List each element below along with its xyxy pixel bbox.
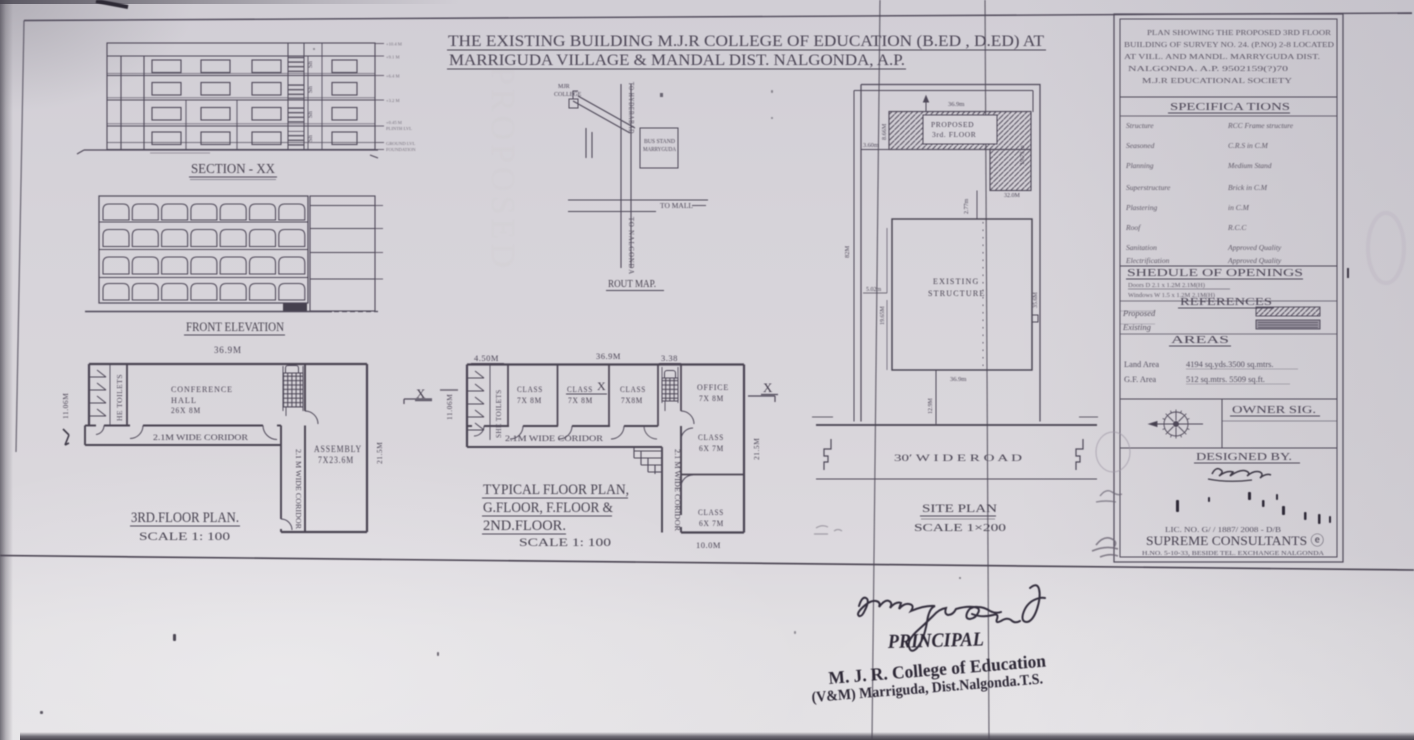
svg-text:SUPREME CONSULTANTS ⓔ: SUPREME CONSULTANTS ⓔ xyxy=(1146,533,1324,548)
svg-text:AREAS: AREAS xyxy=(1171,335,1229,346)
svg-text:Seasoned: Seasoned xyxy=(1126,141,1155,150)
svg-text:3.60m: 3.60m xyxy=(863,142,879,149)
svg-text:36.9m: 36.9m xyxy=(950,376,966,383)
svg-text:35.6M: 35.6M xyxy=(1033,292,1039,309)
svg-text:19.65M: 19.65M xyxy=(880,306,886,326)
svg-text:Sh: Sh xyxy=(307,60,314,68)
svg-text:SCALE 1×200: SCALE 1×200 xyxy=(914,523,1006,534)
svg-text:SPECIFICA TIONS: SPECIFICA TIONS xyxy=(1170,102,1290,113)
svg-text:10.0M: 10.0M xyxy=(696,540,721,550)
svg-text:PLAN SHOWING THE PROPOSED 3RD: PLAN SHOWING THE PROPOSED 3RD FLOOR xyxy=(1147,28,1332,37)
svg-text:30′ W I D E R O A D: 30′ W I D E R O A D xyxy=(894,453,1023,463)
svg-text:ASSEMBLY: ASSEMBLY xyxy=(314,444,362,454)
svg-text:FOUNDATION: FOUNDATION xyxy=(386,147,416,152)
svg-text:OWNER SIG.: OWNER SIG. xyxy=(1232,405,1316,416)
svg-text:OFFICE: OFFICE xyxy=(697,383,729,392)
svg-text:6X 7M: 6X 7M xyxy=(699,444,724,453)
svg-text:7X23.6M: 7X23.6M xyxy=(318,455,354,465)
svg-text:Roof: Roof xyxy=(1125,223,1141,232)
svg-text:2.77m: 2.77m xyxy=(964,199,970,215)
svg-text:Medium Stand: Medium Stand xyxy=(1227,161,1272,170)
svg-text:5.02m: 5.02m xyxy=(866,287,882,293)
svg-text:X: X xyxy=(763,380,773,395)
svg-text:TO MALL: TO MALL xyxy=(660,203,693,210)
svg-text:7X 8M: 7X 8M xyxy=(699,394,724,403)
svg-text:Doors D 2.1 x 1.2M: Doors D 2.1 x 1.2M 2.1M(H) xyxy=(1128,282,1205,289)
svg-text:+10.4 M: +10.4 M xyxy=(386,42,402,47)
svg-text:CLASS: CLASS xyxy=(698,508,724,517)
svg-text:STRUCTURE: STRUCTURE xyxy=(928,289,985,298)
svg-text:3RD.FLOOR PLAN.: 3RD.FLOOR PLAN. xyxy=(131,510,239,526)
svg-text:G.F. Area: G.F. Area xyxy=(1124,375,1156,384)
svg-text:TO HYDERABAD: TO HYDERABAD xyxy=(627,82,634,134)
svg-text:SITE PLAN: SITE PLAN xyxy=(922,501,997,515)
svg-text:PROPOSED: PROPOSED xyxy=(931,120,974,129)
svg-text:FRONT ELEVATION: FRONT ELEVATION xyxy=(186,320,284,334)
svg-text:32.0M: 32.0M xyxy=(1004,193,1021,199)
svg-text:11.06M: 11.06M xyxy=(61,393,70,419)
svg-text:MARRYGUDA: MARRYGUDA xyxy=(643,146,676,153)
svg-text:2.1M WIDE CORIDOR: 2.1M WIDE CORIDOR xyxy=(505,434,604,443)
svg-text:Sh: Sh xyxy=(307,110,314,118)
svg-text:3.38: 3.38 xyxy=(661,353,678,363)
svg-text:TYPICAL FLOOR PLAN,: TYPICAL FLOOR PLAN, xyxy=(483,482,629,498)
svg-text:Planning: Planning xyxy=(1125,161,1154,170)
svg-text:SHE TOILETS: SHE TOILETS xyxy=(495,389,503,438)
svg-text:EXISTING: EXISTING xyxy=(933,277,979,286)
svg-text:Sh: Sh xyxy=(307,85,314,93)
svg-text:X: X xyxy=(597,379,606,393)
svg-text:CLASS: CLASS xyxy=(567,385,593,394)
svg-text:4.50M: 4.50M xyxy=(474,353,499,363)
svg-text:7X 8M: 7X 8M xyxy=(517,396,542,405)
svg-text:Proposed: Proposed xyxy=(1122,308,1156,318)
svg-text:12.9M: 12.9M xyxy=(928,398,934,415)
svg-text:7X 8M: 7X 8M xyxy=(568,396,593,405)
svg-text:HALL: HALL xyxy=(171,395,197,405)
svg-text:+3.2 M: +3.2 M xyxy=(386,98,400,103)
svg-text:Sh: Sh xyxy=(307,134,314,142)
svg-text:AT VILL. AND MANDL. MARRYGUDA: AT VILL. AND MANDL. MARRYGUDA DIST. xyxy=(1124,52,1320,61)
svg-text:SCALE 1: 100: SCALE 1: 100 xyxy=(139,529,230,543)
svg-text:CLASS: CLASS xyxy=(698,433,724,442)
svg-text:+6.4 M: +6.4 M xyxy=(386,74,400,79)
svg-text:Land Area: Land Area xyxy=(1124,360,1159,369)
svg-text:BUILDING OF SURVEY NO. 24. (P.: BUILDING OF SURVEY NO. 24. (P.NO) 2-8 LO… xyxy=(1124,40,1334,49)
svg-text:+0.45 M: +0.45 M xyxy=(386,120,402,125)
svg-text:21.5M: 21.5M xyxy=(752,438,761,460)
svg-text:+9.1 M: +9.1 M xyxy=(386,55,400,60)
svg-text:SCALE 1: 100: SCALE 1: 100 xyxy=(519,535,611,549)
svg-text:11.06M: 11.06M xyxy=(445,394,454,420)
svg-text:BUS STAND: BUS STAND xyxy=(644,138,675,145)
svg-text:3rd. FLOOR: 3rd. FLOOR xyxy=(932,130,976,139)
svg-text:26X 8M: 26X 8M xyxy=(171,405,201,415)
svg-text:GROUND LVL: GROUND LVL xyxy=(386,141,416,146)
svg-text:Sanitation: Sanitation xyxy=(1126,243,1157,252)
svg-text:ROUT MAP.: ROUT MAP. xyxy=(608,279,656,290)
svg-text:21.5M: 21.5M xyxy=(375,442,384,464)
svg-text:THE EXISTING BUILDING M.J.R: THE EXISTING BUILDING M.J.R COLLEGE OF E… xyxy=(448,33,1044,50)
svg-text:7X8M: 7X8M xyxy=(621,396,643,405)
svg-text:36.9M: 36.9M xyxy=(214,345,242,355)
svg-text:82M: 82M xyxy=(844,246,851,259)
svg-text:SHEDULE OF OPENINGS: SHEDULE OF OPENINGS xyxy=(1127,268,1303,279)
svg-text:MJR: MJR xyxy=(558,84,570,90)
svg-text:PRINCIPAL: PRINCIPAL xyxy=(887,628,984,653)
svg-text:19.73 m: 19.73 m xyxy=(1020,145,1026,165)
svg-text:PROPOSED: PROPOSED xyxy=(484,66,521,272)
svg-text:H.NO. 5-10-33, BESIDE TEL. EXC: H.NO. 5-10-33, BESIDE TEL. EXCHANGE NALG… xyxy=(1142,550,1324,557)
svg-text:Electrification: Electrification xyxy=(1125,256,1170,265)
svg-text:36.9m: 36.9m xyxy=(948,101,964,108)
svg-text:in C.M: in C.M xyxy=(1228,203,1250,212)
svg-text:Existing: Existing xyxy=(1122,322,1151,332)
svg-text:2ND.FLOOR.: 2ND.FLOOR. xyxy=(483,518,566,534)
svg-text:NALGONDA. A.P. 9502159(?)7: NALGONDA. A.P. 9502159(?)70 xyxy=(1128,64,1288,73)
svg-text:2.1 M WIDE CORIDOR: 2.1 M WIDE CORIDOR xyxy=(294,449,303,529)
svg-text:CLASS: CLASS xyxy=(517,385,543,394)
svg-text:Plastering: Plastering xyxy=(1125,203,1157,212)
svg-text:CLASS: CLASS xyxy=(620,385,646,394)
svg-text:C.R.S in C.M: C.R.S in C.M xyxy=(1228,141,1269,150)
svg-text:REFERENCES: REFERENCES xyxy=(1180,297,1272,308)
svg-text:COLLEGE: COLLEGE xyxy=(554,92,582,98)
svg-text:M.J.R EDUCATIONAL SOCIETY: M.J.R EDUCATIONAL SOCIETY xyxy=(1142,76,1292,85)
svg-text:2.1 M WIDE CORIDOR: 2.1 M WIDE CORIDOR xyxy=(673,449,681,531)
svg-text:SECTION - XX: SECTION - XX xyxy=(191,161,275,176)
svg-text:HE TOILETS: HE TOILETS xyxy=(115,374,124,421)
svg-text:TO NALGONDA: TO NALGONDA xyxy=(627,217,634,275)
svg-text:36.9M: 36.9M xyxy=(596,351,621,361)
svg-text:CONFERENCE: CONFERENCE xyxy=(171,384,233,394)
svg-text:Structure: Structure xyxy=(1126,121,1154,130)
svg-text:2.1M WIDE CORIDOR: 2.1M WIDE CORIDOR xyxy=(153,433,249,442)
svg-text:R.C.C: R.C.C xyxy=(1227,223,1247,232)
svg-text:8.66M: 8.66M xyxy=(881,123,888,140)
svg-text:Approved Quality: Approved Quality xyxy=(1227,243,1282,252)
svg-text:DESIGNED BY.: DESIGNED BY. xyxy=(1196,452,1292,463)
svg-text:Approved Quality: Approved Quality xyxy=(1227,256,1282,265)
svg-text:PLINTH LVL: PLINTH LVL xyxy=(386,126,412,131)
svg-text:4194 sq.yds.3500 sq.mtrs.: 4194 sq.yds.3500 sq.mtrs. xyxy=(1186,360,1273,369)
svg-text:G.FLOOR, F.FLOOR &: G.FLOOR, F.FLOOR & xyxy=(483,500,614,516)
svg-text:RCC Frame structure: RCC Frame structure xyxy=(1227,121,1294,130)
svg-text:Superstructure: Superstructure xyxy=(1126,183,1171,192)
svg-text:6X 7M: 6X 7M xyxy=(699,519,724,528)
svg-text:512 sq.mtrs. 5509 sq.ft.: 512 sq.mtrs. 5509 sq.ft. xyxy=(1186,375,1265,384)
svg-text:Brick in C.M: Brick in C.M xyxy=(1228,183,1268,192)
